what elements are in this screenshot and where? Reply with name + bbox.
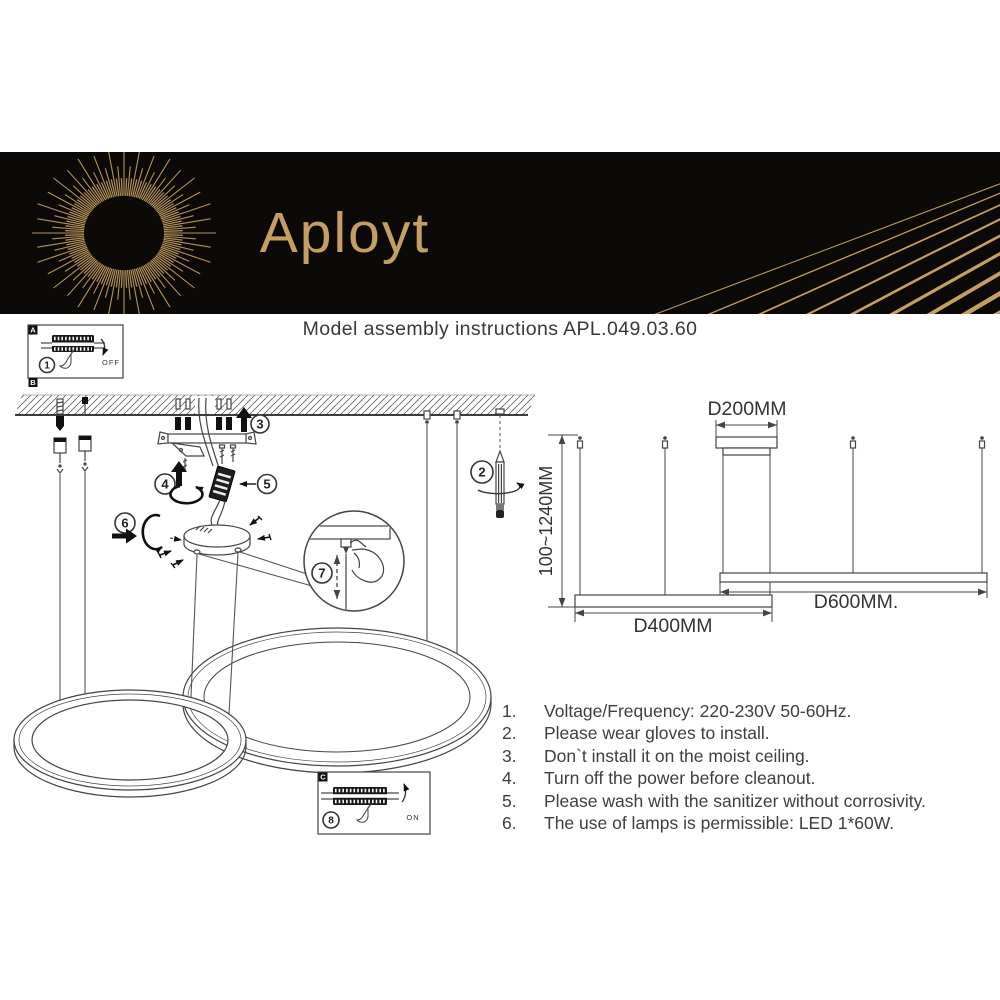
list-item: 1.Voltage/Frequency: 220-230V 50-60Hz. bbox=[502, 700, 988, 722]
instruction-list: 1.Voltage/Frequency: 220-230V 50-60Hz. 2… bbox=[502, 700, 988, 834]
brand-header: Aployt bbox=[0, 152, 1000, 314]
brand-wordmark: Aployt bbox=[260, 201, 430, 265]
instruction-sheet: Aployt Model assembly instructions APL.0… bbox=[0, 0, 1000, 1000]
detail-magnifier: 7 bbox=[304, 511, 404, 611]
svg-text:3: 3 bbox=[256, 417, 263, 432]
dimension-drawing: D200MM D600MM. D400MM 100~1240MM bbox=[536, 398, 987, 637]
svg-text:A: A bbox=[30, 326, 36, 335]
dim-top-label: D200MM bbox=[707, 398, 786, 420]
list-item: 6.The use of lamps is permissible: LED 1… bbox=[502, 812, 988, 834]
dim-middle-label: D600MM. bbox=[814, 591, 899, 613]
pencil-icon bbox=[496, 462, 504, 504]
panel-power-on: C ON 8 bbox=[318, 772, 430, 834]
list-item: 3.Don`t install it on the moist ceiling. bbox=[502, 745, 988, 767]
panel-power-off: A OFF 1 B bbox=[28, 325, 123, 387]
pencil-tip bbox=[496, 451, 504, 462]
dim-suspension-wires bbox=[578, 436, 985, 595]
step-4-marker: 4 bbox=[155, 461, 202, 503]
svg-text:5: 5 bbox=[263, 477, 270, 492]
svg-text:C: C bbox=[320, 773, 326, 782]
starburst-logo-icon bbox=[32, 152, 216, 314]
svg-text:8: 8 bbox=[328, 816, 334, 827]
terminal-block bbox=[209, 466, 235, 502]
svg-text:OFF: OFF bbox=[102, 358, 120, 367]
step-6-marker: 6 bbox=[112, 513, 181, 549]
svg-text:1: 1 bbox=[44, 361, 50, 372]
step-5-marker: 5 bbox=[240, 475, 277, 494]
rotate-arrow-icon bbox=[170, 486, 202, 503]
rotate-arrow-icon bbox=[143, 515, 162, 549]
svg-text:2: 2 bbox=[478, 465, 485, 480]
list-item: 2.Please wear gloves to install. bbox=[502, 722, 988, 744]
list-item: 5.Please wash with the sanitizer without… bbox=[502, 790, 988, 812]
list-item: 4.Turn off the power before cleanout. bbox=[502, 767, 988, 789]
svg-text:7: 7 bbox=[318, 566, 325, 581]
dim-height-label: 100~1240MM bbox=[536, 466, 556, 577]
dim-bottom-label: D400MM bbox=[633, 615, 712, 637]
svg-text:4: 4 bbox=[161, 477, 169, 492]
svg-text:6: 6 bbox=[121, 516, 128, 531]
header-rays-icon bbox=[640, 180, 1000, 314]
ceiling-canopy bbox=[158, 516, 271, 568]
header-art: Aployt bbox=[0, 152, 1000, 314]
svg-text:ON: ON bbox=[406, 813, 419, 822]
cable-gripper bbox=[341, 539, 351, 547]
svg-text:B: B bbox=[30, 378, 36, 387]
pencil-mark-step: 2 bbox=[424, 409, 520, 518]
